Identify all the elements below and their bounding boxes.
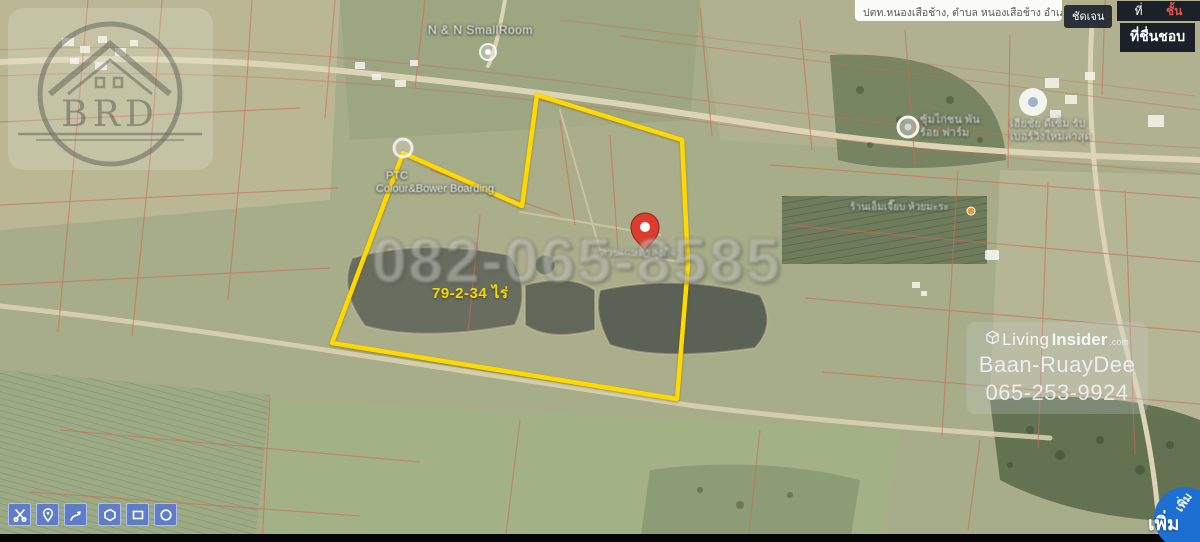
favorites-button[interactable]: ที่ชื่นชอบ <box>1120 23 1195 52</box>
poi-marker-shop[interactable] <box>967 207 975 215</box>
layer-tab-left[interactable]: ที่ <box>1135 2 1143 21</box>
scissors-icon <box>13 508 27 522</box>
road-shield <box>985 250 999 260</box>
hexagon-icon <box>103 508 117 522</box>
poi-marker-ptc[interactable] <box>394 139 412 157</box>
map-screenshot: N & N SmallRoom PTC Colour&Bower Boardin… <box>0 0 1200 542</box>
search-input[interactable]: ปตท.หนองเสือช้าง, ตำบล หนองเสือช้าง อำเภ… <box>855 0 1062 21</box>
poi-marker-chicken-farm[interactable] <box>898 117 918 137</box>
drawing-toolbar <box>8 503 182 526</box>
pin-tool-button[interactable] <box>36 503 59 526</box>
satellite-map[interactable] <box>0 0 1200 542</box>
rectangle-icon <box>131 508 145 522</box>
polyline-icon <box>69 508 83 522</box>
parcel-area-label: 79-2-34 ไร่ <box>432 281 508 305</box>
circle-tool-button[interactable] <box>154 503 177 526</box>
circle-icon <box>159 508 173 522</box>
clear-button[interactable]: ชัดเจน <box>1064 5 1112 28</box>
add-button-label: เพิ่ม <box>1148 509 1180 539</box>
rectangle-tool-button[interactable] <box>126 503 149 526</box>
pin-icon <box>41 508 55 522</box>
polygon-tool-button[interactable] <box>98 503 121 526</box>
bottom-black-bar <box>0 534 1200 542</box>
poi-marker-smallroom[interactable] <box>480 44 496 60</box>
layer-tab-right[interactable]: ชั้น <box>1166 2 1182 21</box>
layer-tabs[interactable]: ที่ ชั้น <box>1117 1 1200 21</box>
polyline-tool-button[interactable] <box>64 503 87 526</box>
scissors-tool-button[interactable] <box>8 503 31 526</box>
terrain-patches <box>0 0 1200 542</box>
poi-marker-right[interactable] <box>1019 88 1047 116</box>
